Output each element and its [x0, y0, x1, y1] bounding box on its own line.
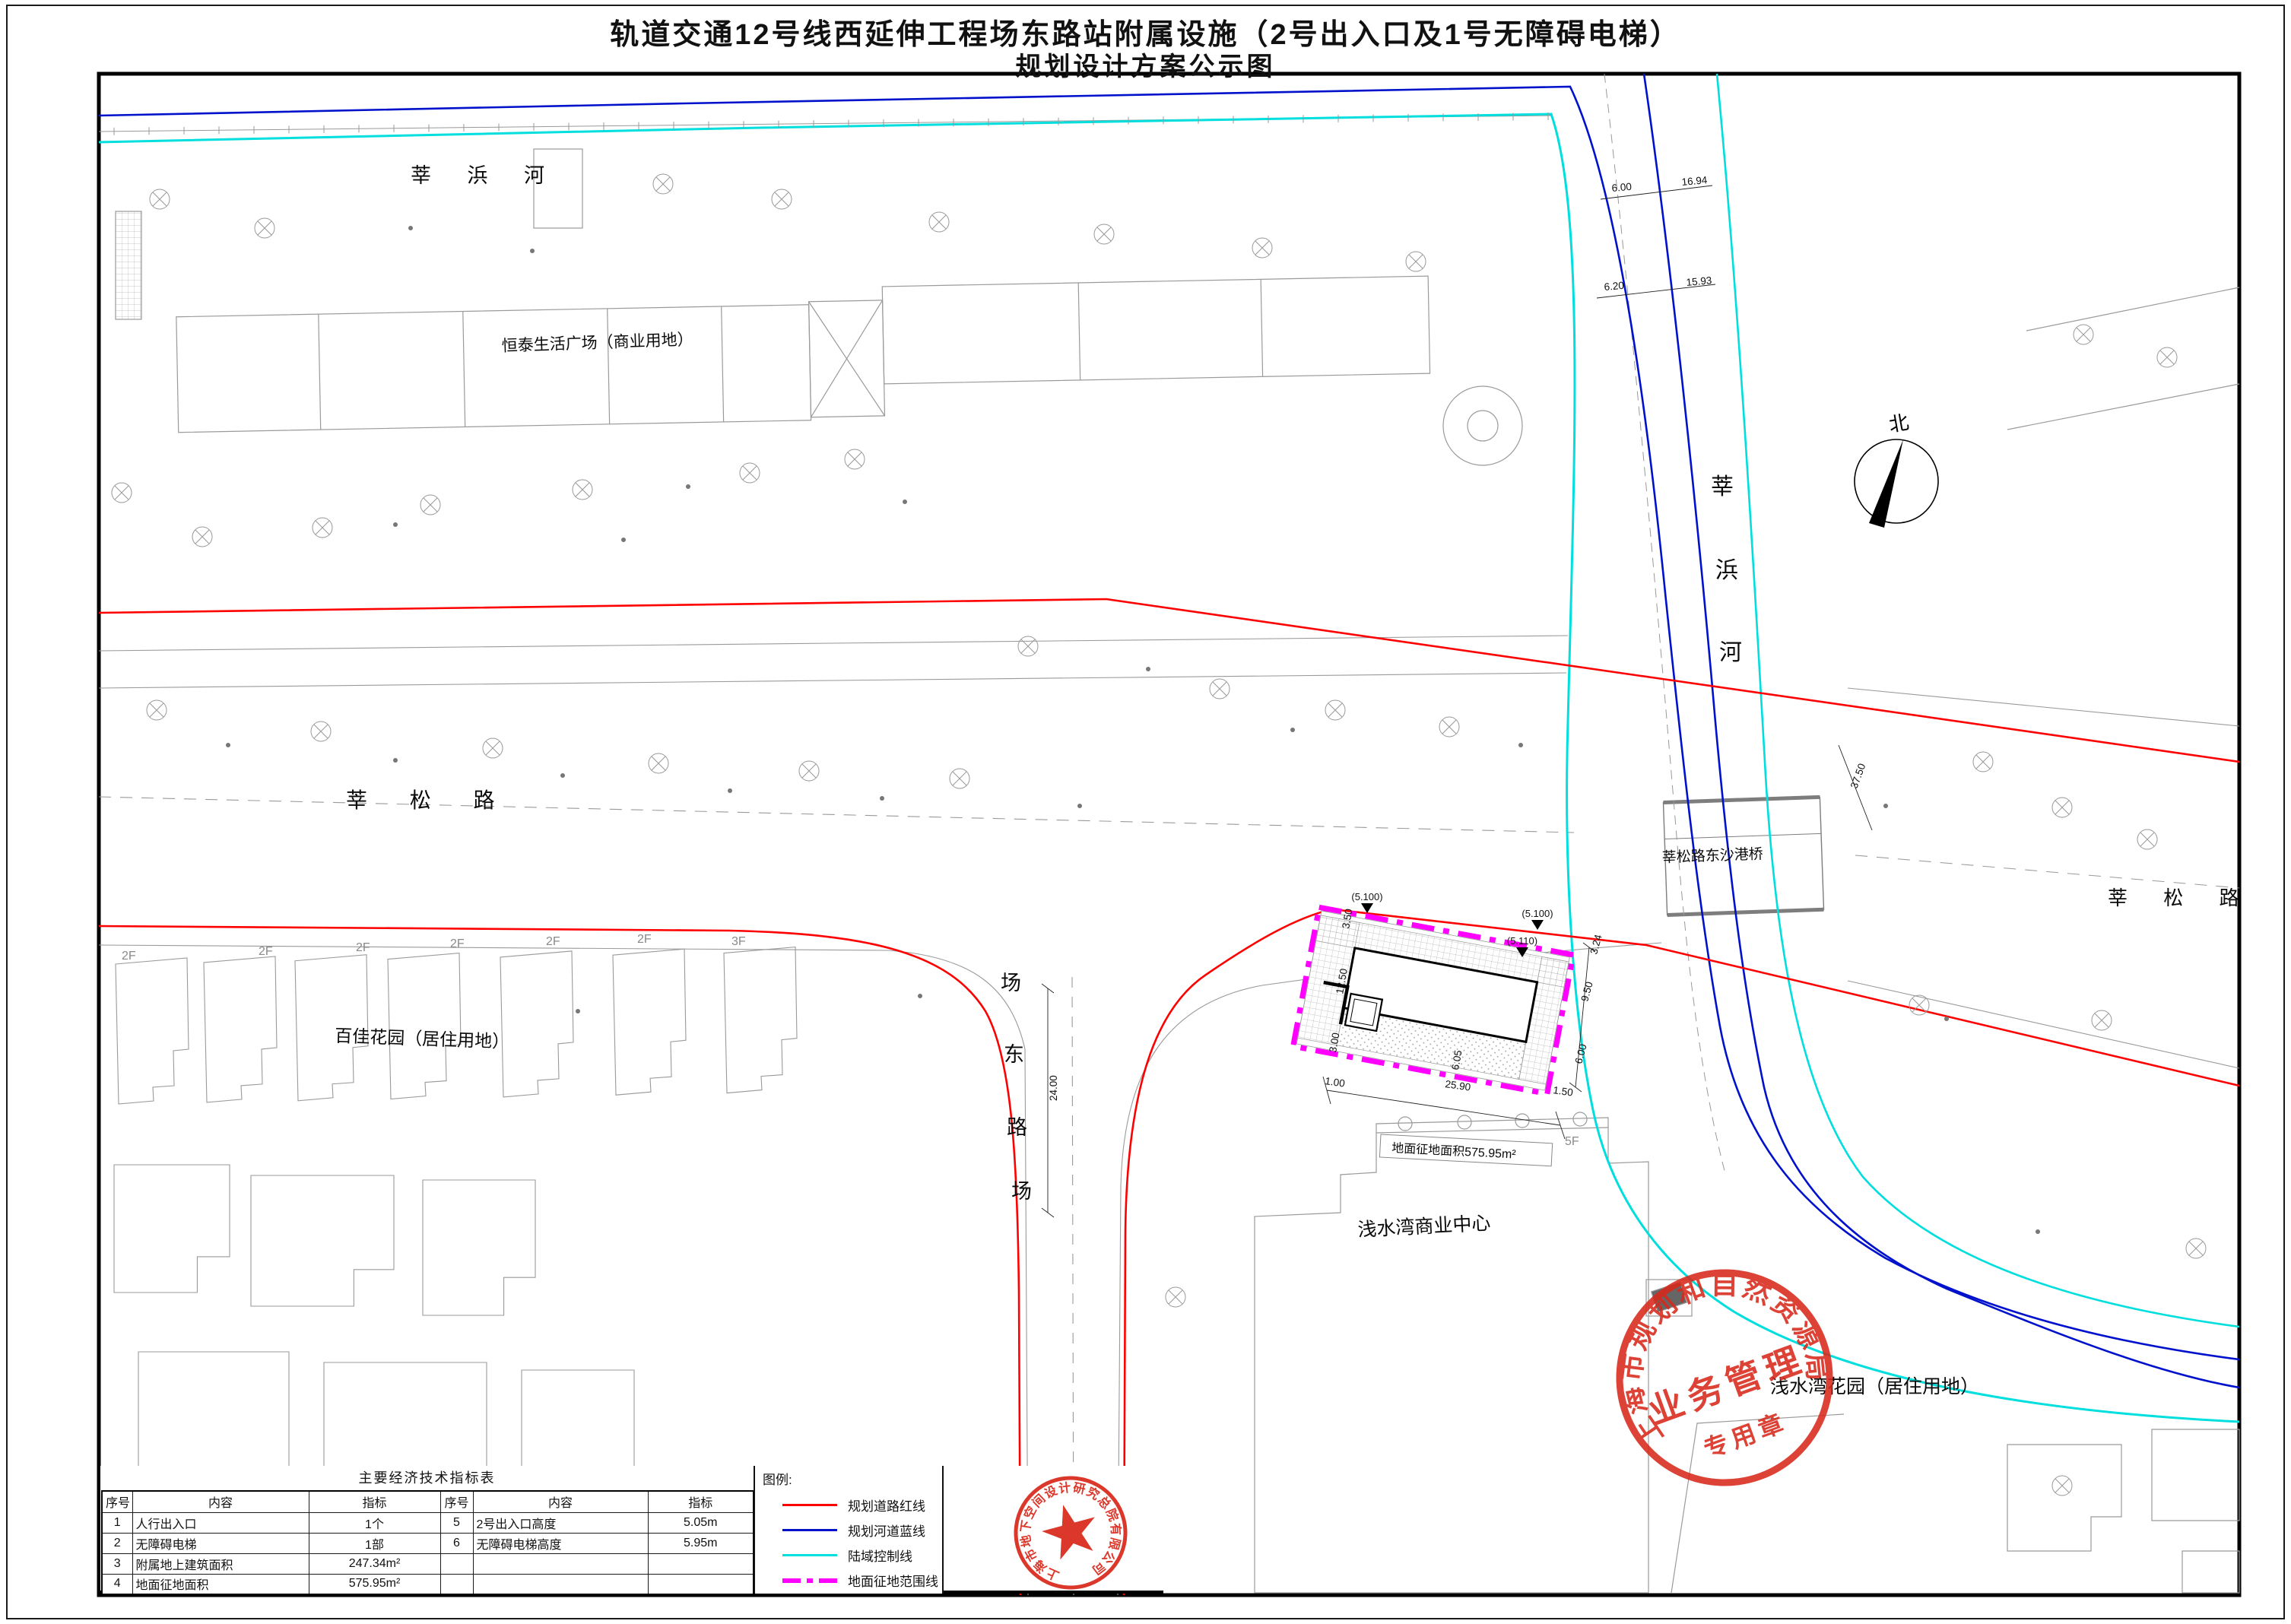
floor-label: 2F [259, 945, 273, 958]
map-dot [880, 796, 884, 801]
dimension-label: 15.93 [1686, 274, 1712, 288]
table-cell: 6 [440, 1533, 473, 1553]
header-cell: 指标 [648, 1491, 754, 1512]
tree-icon [1325, 700, 1345, 720]
elevation-label: (5.100) [1351, 891, 1382, 902]
map-dot [393, 522, 398, 527]
tree-icon [150, 189, 170, 209]
map-dot [226, 743, 230, 747]
house-outline [204, 956, 277, 1102]
tree-icon [845, 449, 865, 469]
planning-red-lines [99, 599, 2239, 1595]
table-cell: 1部 [309, 1533, 440, 1553]
map-dot [728, 788, 732, 793]
legend-item: 规划河道蓝线 [763, 1518, 942, 1543]
red-line-southeast [1124, 909, 2239, 1595]
dimension-label: 3.24 [1588, 933, 1604, 956]
table-cell [648, 1574, 754, 1594]
compass-needle [1869, 439, 1903, 528]
map-dot [408, 226, 413, 230]
table-cell: 5 [440, 1512, 473, 1533]
elevation-label: (5.110) [1507, 935, 1537, 947]
north-compass: 北 [1855, 411, 1938, 528]
legend: 图例: 规划道路红线 规划河道蓝线 陆域控制线 地面征地范围线 [754, 1466, 944, 1594]
tree-icon [950, 769, 969, 788]
header-cell: 指标 [309, 1491, 440, 1512]
east-road-lines [2007, 287, 2239, 430]
table-cell: 无障碍电梯高度 [473, 1533, 648, 1553]
hengtai-building-outline [176, 276, 1430, 433]
map-label-baijia-garden: 百佳花园（居住用地） [335, 1026, 510, 1051]
tree-icon [1252, 238, 1272, 258]
tree-icon [2074, 325, 2093, 344]
floor-label: 2F [122, 950, 136, 963]
map-label-xinbang-river-vert-1: 莘 [1711, 474, 1734, 500]
map-dot [560, 773, 565, 778]
indicators-table: 主要经济技术指标表 序号 内容 指标 序号 内容 指标 1 人行出入口 1个 5… [101, 1467, 753, 1595]
road-edges [99, 636, 2239, 1595]
tree-icon [2137, 829, 2157, 849]
dimension-label: 6.00 [1611, 181, 1632, 194]
map-label-changdong-road-1: 场 [1001, 972, 1021, 994]
map-dot [393, 758, 398, 763]
house-outline [251, 1175, 394, 1306]
table-cell: 2 [102, 1533, 132, 1553]
dimension-label: 37.50 [1848, 762, 1868, 790]
tree-icon [653, 174, 673, 194]
map-dot [1146, 667, 1150, 671]
table-row: 4 地面征地面积 575.95m² [102, 1574, 754, 1594]
legend-item: 规划道路红线 [763, 1492, 942, 1518]
table-cell: 2号出入口高度 [473, 1512, 648, 1533]
map-dot [1077, 804, 1082, 808]
river-lines [99, 74, 2239, 1422]
table-cell [473, 1553, 648, 1574]
map-label-xinbang-river-vert-2: 浜 [1715, 558, 1738, 583]
header-cell: 序号 [102, 1491, 132, 1512]
page-title-line2: 规划设计方案公示图 [0, 46, 2291, 83]
map-label-changdong-road-2: 东 [1004, 1043, 1024, 1066]
garden-boundary [1671, 1414, 1844, 1593]
dimension-label: 6.00 [1572, 1043, 1588, 1065]
table-cell: 1 [102, 1512, 132, 1533]
tree-icon [2186, 1239, 2206, 1258]
tree-icon [311, 722, 331, 741]
north-label: 北 [1887, 411, 1911, 436]
map-frame [99, 74, 2239, 1595]
spiral-stair [1443, 386, 1522, 465]
red-line-north [99, 599, 2239, 762]
tree-icon [1210, 679, 1230, 699]
table-cell: 575.95m² [309, 1574, 440, 1594]
floor-label: 2F [546, 935, 560, 948]
map-label-changdong-road-3: 路 [1007, 1116, 1027, 1139]
map-label-xinsong-road-west: 莘 松 路 [346, 788, 513, 812]
tree-icon [1439, 717, 1459, 737]
garden-house [2152, 1429, 2239, 1593]
elevator-shaft [1345, 994, 1382, 1031]
tree-icon [2157, 347, 2177, 367]
tree-icon [772, 189, 792, 209]
table-cell: 5.05m [648, 1512, 754, 1533]
floor-label: 5F [1565, 1135, 1579, 1148]
legend-item: 地面征地范围线 [763, 1568, 942, 1593]
tree-icon [740, 463, 760, 483]
tree-icon [573, 480, 592, 500]
map-dot [1944, 1017, 1949, 1021]
legend-item: 陆域控制线 [763, 1543, 942, 1568]
cyan-line-sample [782, 1554, 837, 1556]
elevation-label: (5.100) [1522, 908, 1553, 919]
table-cell [440, 1553, 473, 1574]
table-cell [473, 1574, 648, 1594]
table-cell: 人行出入口 [132, 1512, 309, 1533]
dimension-label: 6.20 [1604, 280, 1624, 293]
table-cell: 3 [102, 1553, 132, 1574]
house-outline [114, 1165, 230, 1293]
tree-icon [1406, 252, 1426, 271]
header-cell: 序号 [440, 1491, 473, 1512]
house-outline [423, 1180, 535, 1315]
indicators-table-title: 主要经济技术指标表 [101, 1467, 753, 1490]
legend-label: 陆域控制线 [848, 1546, 912, 1565]
dimension-label: 1.00 [1325, 1075, 1346, 1090]
river-blue-line-west [99, 87, 2239, 1359]
header-cell: 内容 [132, 1491, 309, 1512]
map-dot [1883, 804, 1888, 808]
legend-title: 图例: [763, 1469, 942, 1488]
magenta-dash-sample [782, 1578, 837, 1583]
table-row: 2 无障碍电梯 1部 6 无障碍电梯高度 5.95m [102, 1533, 754, 1553]
elevation-marker-icon [1531, 920, 1544, 930]
map-dot [576, 1009, 580, 1013]
red-line-sample [782, 1504, 837, 1506]
house-outline [613, 949, 686, 1095]
plan-publicity-page: { "title": { "line1": "轨道交通12号线西延伸工程场东路站… [0, 0, 2291, 1624]
map-dot [530, 249, 535, 253]
tree-icon [255, 218, 274, 238]
dimension-label: 24.00 [1048, 1075, 1059, 1101]
qianshuiwan-mall-outline [1255, 1118, 1648, 1593]
tree-icon [112, 483, 132, 503]
house-outline [724, 947, 797, 1093]
house-outline [116, 958, 189, 1104]
table-cell: 1个 [309, 1512, 440, 1533]
table-cell [440, 1574, 473, 1594]
floor-label: 2F [637, 933, 652, 946]
tree-icon [2052, 1476, 2072, 1496]
tree-icon [1973, 752, 1993, 772]
map-dot [2036, 1229, 2040, 1234]
dimension-label: 9.50 [1579, 981, 1594, 1003]
indicators-grid: 序号 内容 指标 序号 内容 指标 1 人行出入口 1个 5 2号出入口高度 5… [101, 1490, 754, 1595]
table-cell: 4 [102, 1574, 132, 1594]
blue-line-sample [782, 1529, 837, 1531]
garden-house [2007, 1445, 2121, 1551]
table-header-row: 序号 内容 指标 序号 内容 指标 [102, 1491, 754, 1512]
map-dot [903, 500, 907, 504]
map-labels: 莘 浜 河恒泰生活广场（商业用地）莘 松 路莘 松 路莘浜河莘松路东沙港桥场东路… [122, 164, 2254, 1397]
map-dot [918, 994, 922, 998]
elevation-marker-icon [1361, 903, 1373, 913]
tree-icon [313, 518, 332, 538]
tree-icon [192, 527, 212, 547]
floor-label: 2F [356, 941, 370, 954]
tree-icon [2092, 1010, 2112, 1030]
tree-icon [1018, 636, 1038, 656]
floor-label: 3F [731, 935, 746, 948]
table-row: 3 附属地上建筑面积 247.34m² [102, 1553, 754, 1574]
map-label-qianshuiwan-garden: 浅水湾花园（居住用地） [1770, 1376, 1979, 1397]
map-dot [1290, 728, 1295, 732]
table-cell: 附属地上建筑面积 [132, 1553, 309, 1574]
tree-icon [147, 700, 167, 720]
map-dot [1518, 743, 1523, 747]
dimension-label: 16.94 [1681, 174, 1708, 188]
house-outline [388, 953, 461, 1099]
tree-icon [799, 761, 819, 781]
generated-symbols [112, 113, 2206, 1551]
table-cell: 地面征地面积 [132, 1574, 309, 1594]
tree-icon [420, 495, 440, 515]
table-cell [648, 1553, 754, 1574]
tree-icon [649, 753, 668, 773]
tree-icon [1094, 224, 1114, 244]
legend-label: 地面征地范围线 [848, 1571, 938, 1590]
table-cell: 5.95m [648, 1533, 754, 1553]
table-cell: 无障碍电梯 [132, 1533, 309, 1553]
land-control-line-east [1717, 74, 2239, 1327]
map-label-hengtai-plaza: 恒泰生活广场（商业用地） [501, 331, 693, 355]
map-label-qianshuiwan-mall: 浅水湾商业中心 [1357, 1213, 1491, 1241]
map-label-xinbang-river-vert-3: 河 [1719, 640, 1742, 665]
map-label-xinsong-road-east: 莘 松 路 [2108, 887, 2254, 909]
header-cell: 内容 [473, 1491, 648, 1512]
tree-icon [929, 212, 949, 232]
tree-icon [483, 738, 503, 758]
floor-label: 2F [450, 937, 465, 950]
dimension-label: 1.50 [1553, 1084, 1574, 1099]
legend-label: 规划河道蓝线 [848, 1521, 925, 1540]
plan-map: 北 莘 浜 河恒泰生活广场（商业用地）莘 松 路莘 松 路莘浜河莘松路东沙港桥场… [0, 0, 2291, 1624]
map-dot [686, 484, 690, 489]
map-dot [621, 538, 626, 542]
map-label-bridge-label: 莘松路东沙港桥 [1661, 845, 1763, 866]
map-label-changdong-road-4: 场 [1011, 1180, 1032, 1203]
ladder-strip [116, 211, 141, 319]
legend-label: 规划道路红线 [848, 1496, 925, 1515]
house-outline [500, 951, 573, 1097]
tree-icon [1909, 995, 1929, 1015]
map-label-xinbang-river-top: 莘 浜 河 [411, 164, 560, 187]
table-row: 1 人行出入口 1个 5 2号出入口高度 5.05m [102, 1512, 754, 1533]
tree-icon [1166, 1287, 1185, 1307]
tree-icon [2052, 798, 2072, 817]
table-cell: 247.34m² [309, 1553, 440, 1574]
